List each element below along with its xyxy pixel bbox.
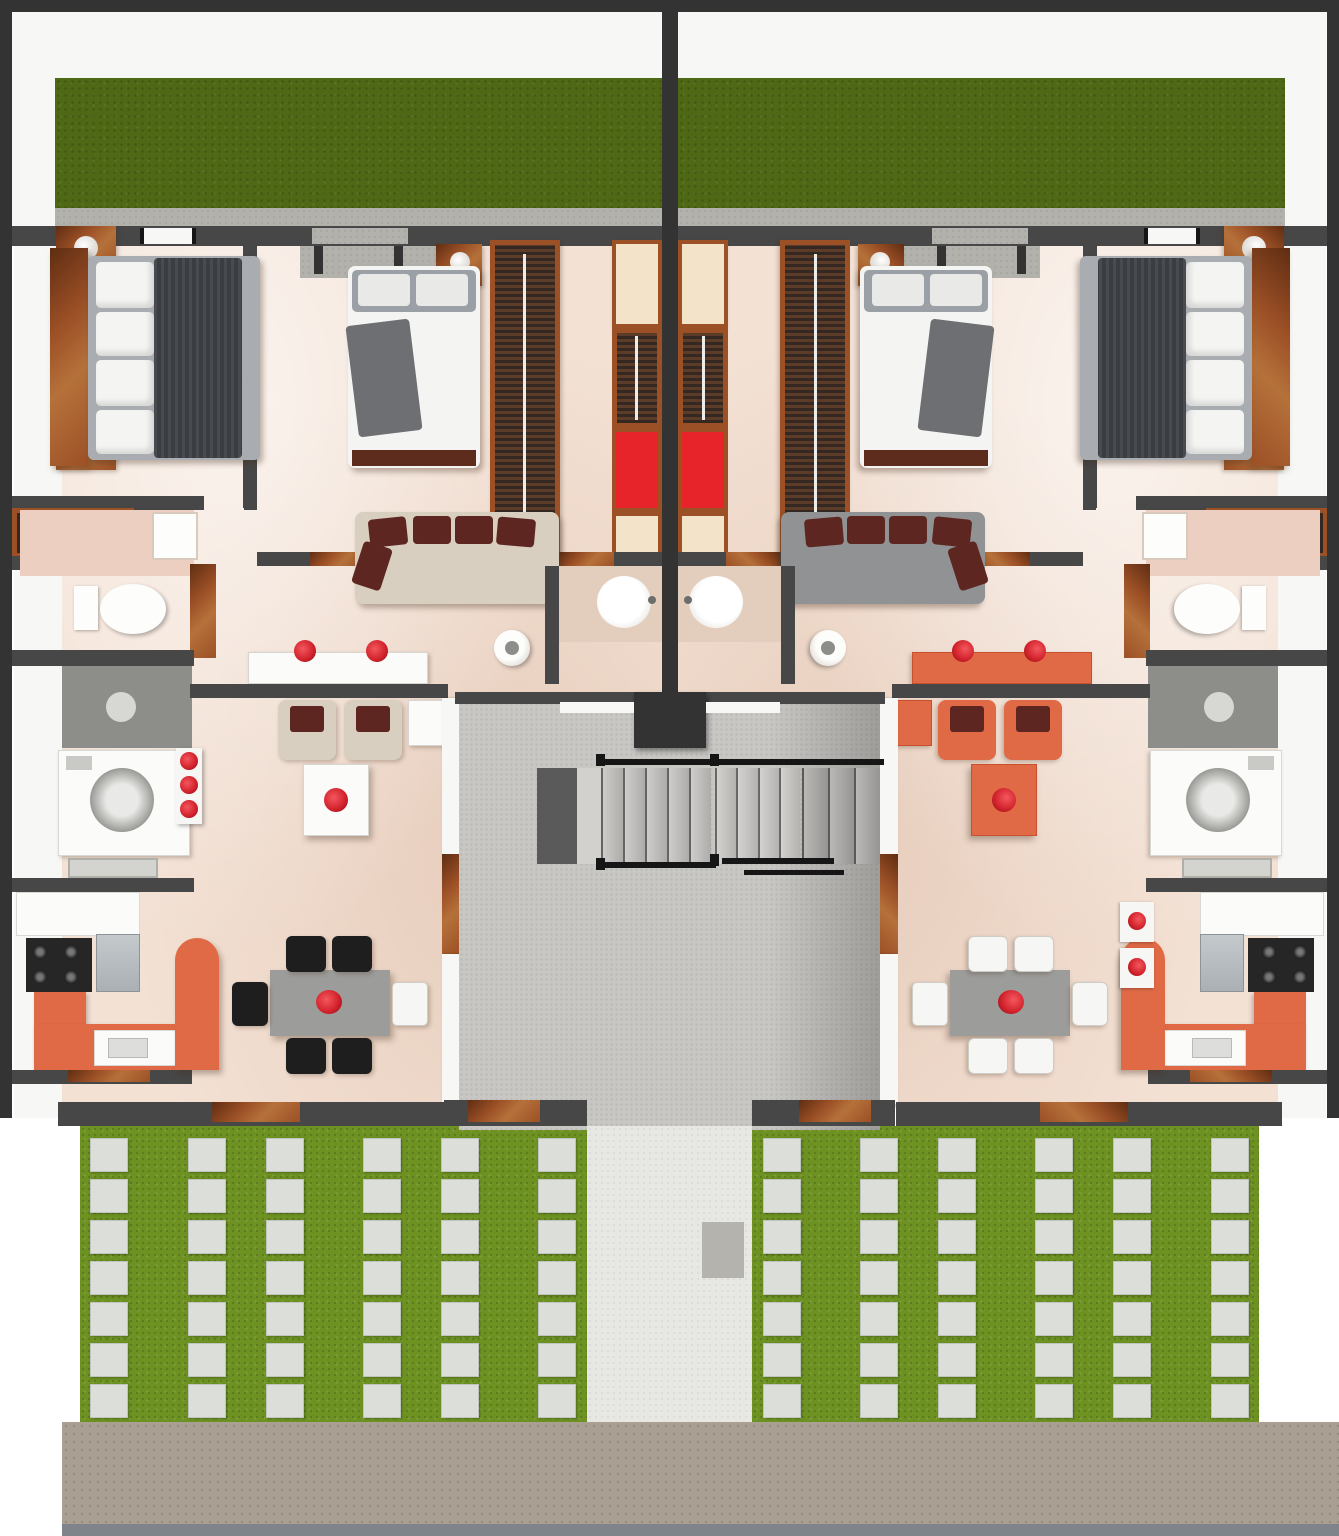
oven — [1200, 934, 1244, 992]
wall-stub — [1083, 496, 1096, 510]
dining-chair — [232, 982, 268, 1026]
bathroom-south-wall — [1146, 650, 1328, 666]
vanity-wall — [781, 566, 795, 684]
front-door-threshold — [212, 1102, 300, 1122]
armchair-cushion — [290, 706, 324, 732]
stair-tread — [828, 768, 854, 864]
console-table — [248, 652, 428, 684]
flower-pot — [952, 640, 974, 662]
stairwell-floor-shade — [770, 702, 880, 1130]
back-door-opening — [1144, 228, 1200, 244]
pillow — [96, 410, 154, 454]
stair-landing-dark — [537, 768, 577, 864]
stove-burner — [64, 970, 78, 984]
sofa-cushion — [889, 516, 927, 544]
railing-post — [596, 754, 605, 766]
stair-flight-2 — [715, 768, 800, 864]
stair-tread — [758, 768, 779, 864]
dining-chair — [286, 1038, 326, 1074]
sofa-cushion — [413, 516, 451, 544]
laundry-sink — [1204, 692, 1234, 722]
stair-tread — [802, 768, 828, 864]
dining-centerpiece-flowers — [316, 990, 342, 1014]
pillow — [930, 274, 982, 306]
laundry-window — [1182, 858, 1272, 878]
railing-post — [710, 854, 719, 866]
back-patio-opening — [932, 228, 1028, 244]
bed-headboard — [50, 248, 88, 466]
vanity-sink — [597, 576, 651, 628]
pedestal-basin-bowl — [821, 641, 835, 655]
flower-wall-art — [1128, 958, 1146, 976]
stove-burner — [33, 945, 47, 959]
laundry-sink — [106, 692, 136, 722]
coffee-table-flower — [992, 788, 1016, 812]
stove-burner — [1293, 945, 1307, 959]
unit-entry-side-door — [442, 854, 460, 954]
stair-tread — [779, 768, 800, 864]
shower-tray — [152, 512, 198, 560]
kitchen-cabinets — [1200, 892, 1324, 936]
pillow — [358, 274, 410, 306]
wardrobe-rail — [635, 336, 638, 421]
dining-chair — [1072, 982, 1108, 1026]
stove — [26, 938, 92, 992]
pedestal-basin-bowl — [505, 641, 519, 655]
stair-railing-bottom — [744, 870, 844, 875]
stair-tread — [736, 768, 757, 864]
washer-drum — [90, 768, 154, 832]
laundry-south-wall — [12, 878, 194, 892]
door-threshold — [1190, 1070, 1272, 1082]
dining-chair — [1014, 936, 1054, 972]
oven — [96, 934, 140, 992]
armchair-cushion — [1016, 706, 1050, 732]
console-table — [912, 652, 1092, 684]
dining-chair — [286, 936, 326, 972]
doormat — [702, 1222, 744, 1278]
stairhall-wall — [880, 954, 898, 1104]
stair-tread — [645, 768, 667, 864]
shower-tray — [1142, 512, 1188, 560]
stair-railing-bottom — [598, 862, 716, 868]
flower-wall-art — [1128, 912, 1146, 930]
pillow — [96, 312, 154, 356]
stair-railing-bottom — [722, 858, 834, 864]
flower-pot — [366, 640, 388, 662]
stairhall-wall — [442, 954, 460, 1104]
living-hall-wall — [190, 684, 448, 698]
wardrobe — [780, 240, 850, 554]
pillow — [96, 360, 154, 406]
closet-hanging-clothes — [612, 328, 662, 428]
coffee-table-flower — [324, 788, 348, 812]
vanity-wall — [545, 566, 559, 684]
stove-burner — [1293, 970, 1307, 984]
back-door-opening — [140, 228, 196, 244]
kitchen-cabinets — [16, 892, 140, 936]
kitchen-peninsula — [175, 938, 219, 1070]
bed-runner — [917, 319, 994, 438]
pillow — [1186, 262, 1244, 308]
railing-post — [710, 754, 719, 766]
vanity-faucet — [684, 596, 692, 604]
kitchen-sink-basin — [1192, 1038, 1232, 1058]
dining-chair — [968, 936, 1008, 972]
flower — [180, 752, 198, 770]
closet-red-section — [678, 428, 728, 512]
entry-door-left — [560, 702, 634, 713]
bathroom-door — [1124, 564, 1150, 658]
stair-flight-3 — [802, 768, 880, 864]
dining-chair — [1014, 1038, 1054, 1074]
stairhall-wall — [880, 698, 898, 854]
kitchen-sink-basin — [108, 1038, 148, 1058]
pillow — [416, 274, 468, 306]
stair-tread — [854, 768, 880, 864]
door-threshold — [560, 552, 614, 566]
wardrobe-rail — [814, 254, 817, 540]
closet-red-section — [612, 428, 662, 512]
stairhall-wall — [442, 698, 460, 854]
sofa-cushion — [804, 516, 844, 547]
unit-entry-side-door — [880, 854, 898, 954]
sofa-cushion — [496, 516, 536, 547]
stove-burner — [1262, 945, 1276, 959]
bathroom-south-wall — [12, 650, 194, 666]
toilet-tank — [74, 586, 98, 630]
closet-hanging-clothes — [678, 328, 728, 428]
dining-chair — [912, 982, 948, 1026]
stove-burner — [64, 945, 78, 959]
flower — [180, 776, 198, 794]
toilet-bowl — [100, 584, 166, 634]
dining-centerpiece-flowers — [998, 990, 1024, 1014]
washer-panel — [66, 756, 92, 770]
bed-foot-bench — [864, 450, 988, 466]
stair-tread — [715, 768, 736, 864]
pillow — [96, 262, 154, 308]
dining-chair — [968, 1038, 1008, 1074]
armchair-cushion — [356, 706, 390, 732]
front-door-threshold — [1040, 1102, 1128, 1122]
laundry-south-wall — [1146, 878, 1328, 892]
floor-plan-scene — [0, 0, 1339, 1536]
bed-runner — [345, 319, 422, 438]
sofa-cushion — [455, 516, 493, 544]
door-threshold — [68, 1070, 150, 1082]
flower-pot — [1024, 640, 1046, 662]
flower-pot — [294, 640, 316, 662]
dining-chair — [392, 982, 428, 1026]
boundary-wall-right — [1327, 0, 1339, 1118]
washer-drum — [1186, 768, 1250, 832]
bed-headboard — [1252, 248, 1290, 466]
closet-shelf-top — [612, 240, 662, 328]
stove — [1248, 938, 1314, 992]
side-table — [896, 700, 932, 746]
toilet-tank — [1242, 586, 1266, 630]
wall-stub — [244, 496, 257, 510]
stair-flight-1 — [601, 768, 711, 864]
armchair-cushion — [950, 706, 984, 732]
stair-tread — [667, 768, 689, 864]
pillow — [872, 274, 924, 306]
sofa-cushion — [847, 516, 885, 544]
dining-chair — [332, 936, 372, 972]
living-hall-wall — [892, 684, 1150, 698]
vanity-faucet — [648, 596, 656, 604]
pillow — [1186, 312, 1244, 356]
flower — [180, 800, 198, 818]
stair-railing-top — [598, 759, 884, 765]
back-patio-opening — [312, 228, 408, 244]
porch-door-threshold — [468, 1100, 540, 1122]
bed-foot-bench — [352, 450, 476, 466]
porch-door-threshold — [799, 1100, 871, 1122]
stair-tread — [623, 768, 645, 864]
dining-chair — [332, 1038, 372, 1074]
bathroom-door — [190, 564, 216, 658]
stair-landing-light — [577, 768, 601, 864]
patio-door-jamb — [314, 246, 323, 274]
stove-burner — [1262, 970, 1276, 984]
bed-blanket — [1098, 258, 1186, 458]
washer-panel — [1248, 756, 1274, 770]
bed-blanket — [154, 258, 242, 458]
stair-tread — [689, 768, 711, 864]
entry-door-right — [706, 702, 780, 713]
patio-door-jamb — [1017, 246, 1026, 274]
closet-shelf-top — [678, 240, 728, 328]
wardrobe-rail — [523, 254, 526, 540]
party-wall-center — [662, 0, 678, 714]
boundary-wall-left — [0, 0, 12, 1118]
stair-tread — [601, 768, 623, 864]
wardrobe-rail — [702, 336, 705, 421]
laundry-window — [68, 858, 158, 878]
railing-post — [596, 858, 605, 870]
door-threshold — [726, 552, 780, 566]
pillow — [1186, 360, 1244, 406]
wardrobe — [490, 240, 560, 554]
pillow — [1186, 410, 1244, 454]
stove-burner — [33, 970, 47, 984]
vanity-sink — [689, 576, 743, 628]
side-table — [408, 700, 444, 746]
toilet-bowl — [1174, 584, 1240, 634]
